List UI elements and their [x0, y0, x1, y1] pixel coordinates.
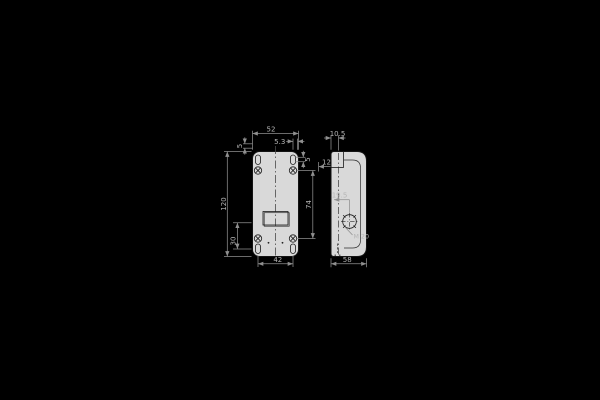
dim-label-knockout-center: 19.5	[332, 192, 348, 200]
front-view	[253, 146, 299, 262]
dim-label-hole-edge-offset: 5.3	[274, 138, 285, 146]
detail-dot-right	[339, 255, 340, 256]
dim-side-cover-depth: 10.5	[324, 130, 346, 150]
dim-label-overall-height: 120	[220, 197, 228, 210]
dim-label-cover-step: 12	[322, 159, 331, 167]
dim-side-overall-depth: 58	[331, 256, 367, 267]
dim-label-cover-depth: 10.5	[330, 130, 346, 138]
drawing-page: 52 5.3 5 5	[0, 0, 600, 400]
dim-front-lower-left: 30	[229, 223, 251, 249]
technical-drawing-canvas: 52 5.3 5 5	[0, 0, 600, 400]
drill-mark-right	[282, 242, 284, 244]
dim-label-width-top: 52	[267, 125, 276, 133]
dim-front-hole-spacing-bottom: 42	[258, 256, 293, 267]
side-view	[331, 152, 367, 257]
dim-label-lower-left: 30	[229, 237, 237, 246]
dim-front-slot-offset-left: 5	[236, 137, 253, 154]
dim-front-hole-spacing-vertical: 74	[297, 171, 316, 239]
dim-label-hole-spacing-vertical: 74	[305, 200, 313, 209]
dim-front-hole-edge-offset: 5.3	[274, 138, 304, 150]
dim-label-knockout-thread: M 20	[354, 234, 369, 241]
dim-label-overall-depth: 58	[343, 256, 352, 264]
detail-dot-left	[335, 255, 336, 256]
dim-label-hole-spacing-bottom: 42	[273, 256, 282, 264]
dim-label-slot-offset-right: 5	[304, 157, 312, 161]
drill-mark-left	[268, 242, 270, 244]
dim-label-slot-offset-left: 5	[236, 144, 244, 148]
